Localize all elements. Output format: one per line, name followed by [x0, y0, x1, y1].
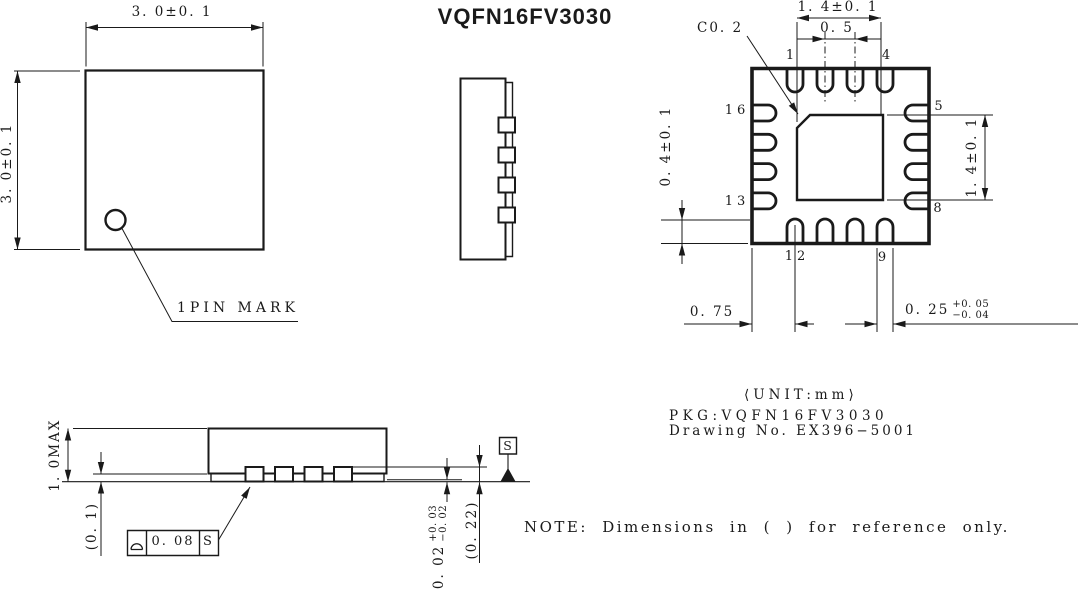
- pad-width-dim: 1. 4±0. 1: [794, 0, 882, 14]
- pin-number-4: 4: [879, 49, 893, 63]
- pitch-dim: 0. 5: [815, 21, 859, 35]
- top-view-body-outline: [86, 71, 264, 250]
- package-height-dim: 1. 0MAX: [48, 418, 62, 492]
- bottom-view-body-outline: [752, 69, 929, 244]
- chamfer-dim: C0. 2: [697, 21, 743, 35]
- pin-number-8: 8: [930, 202, 945, 216]
- standoff-ref-dim: (0. 1): [85, 495, 99, 557]
- pin1-mark-label: 1PIN MARK: [177, 301, 299, 316]
- pin1-mark-circle: [106, 210, 126, 230]
- side-view-lead-strip: [506, 83, 513, 257]
- side-view-body: [461, 79, 506, 260]
- standoff-tolerance: +0. 03 −0. 02: [429, 505, 450, 542]
- standoff-dim: 0. 02 +0. 03 −0. 02: [427, 492, 451, 602]
- coplanarity-leader: [219, 487, 251, 540]
- datum-label: S: [499, 439, 516, 452]
- pin-number-5: 5: [931, 100, 946, 114]
- lead-width-dim: 0. 25 +0. 05 −0. 04: [905, 300, 989, 321]
- coplanarity-value: 0. 08: [147, 535, 199, 549]
- top-view-drawing: [14, 22, 298, 322]
- coplanarity-datum-ref: S: [199, 535, 218, 549]
- top-view-height-dim: 3. 0±0. 1: [0, 119, 14, 207]
- profile-view-drawing: [62, 429, 530, 564]
- reference-note: NOTE: Dimensions in ( ) for reference on…: [524, 520, 1010, 536]
- center-pad: [797, 115, 883, 200]
- lead-length-dim: 0. 4±0. 1: [659, 102, 673, 190]
- coplanarity-symbol-icon: [131, 544, 143, 550]
- drawing-number: Drawing No. EX396−5001: [669, 424, 917, 438]
- top-view-width-dim: 3. 0±0. 1: [128, 5, 216, 19]
- corner-to-lead-dim: 0. 75: [684, 305, 740, 319]
- lead-width-tolerance: +0. 05 −0. 04: [952, 300, 989, 321]
- profile-bottom-strip: [211, 474, 384, 482]
- bottom-view-leads: [753, 69, 928, 243]
- pin-number-9: 9: [874, 251, 890, 265]
- drawing-canvas: VQFN16FV3030 3. 0±0. 1 3. 0±0. 1 1PIN MA…: [0, 0, 1080, 604]
- pin-number-13: 13: [723, 195, 751, 209]
- side-view-drawing: [461, 79, 516, 260]
- datum-triangle-icon: [501, 468, 516, 482]
- pin-number-12: 12: [783, 250, 811, 264]
- package-name: PKG:VQFN16FV3030: [669, 409, 888, 423]
- lead-height-ref-dim: (0. 22): [465, 496, 479, 564]
- pad-height-dim: 1. 4±0. 1: [965, 113, 979, 201]
- drawing-title: VQFN16FV3030: [420, 5, 630, 28]
- bottom-view-drawing: [661, 18, 1078, 332]
- pin-number-1: 1: [783, 49, 797, 63]
- unit-note: ⟨UNIT:mm⟩: [744, 388, 858, 402]
- pin-number-16: 16: [723, 104, 751, 118]
